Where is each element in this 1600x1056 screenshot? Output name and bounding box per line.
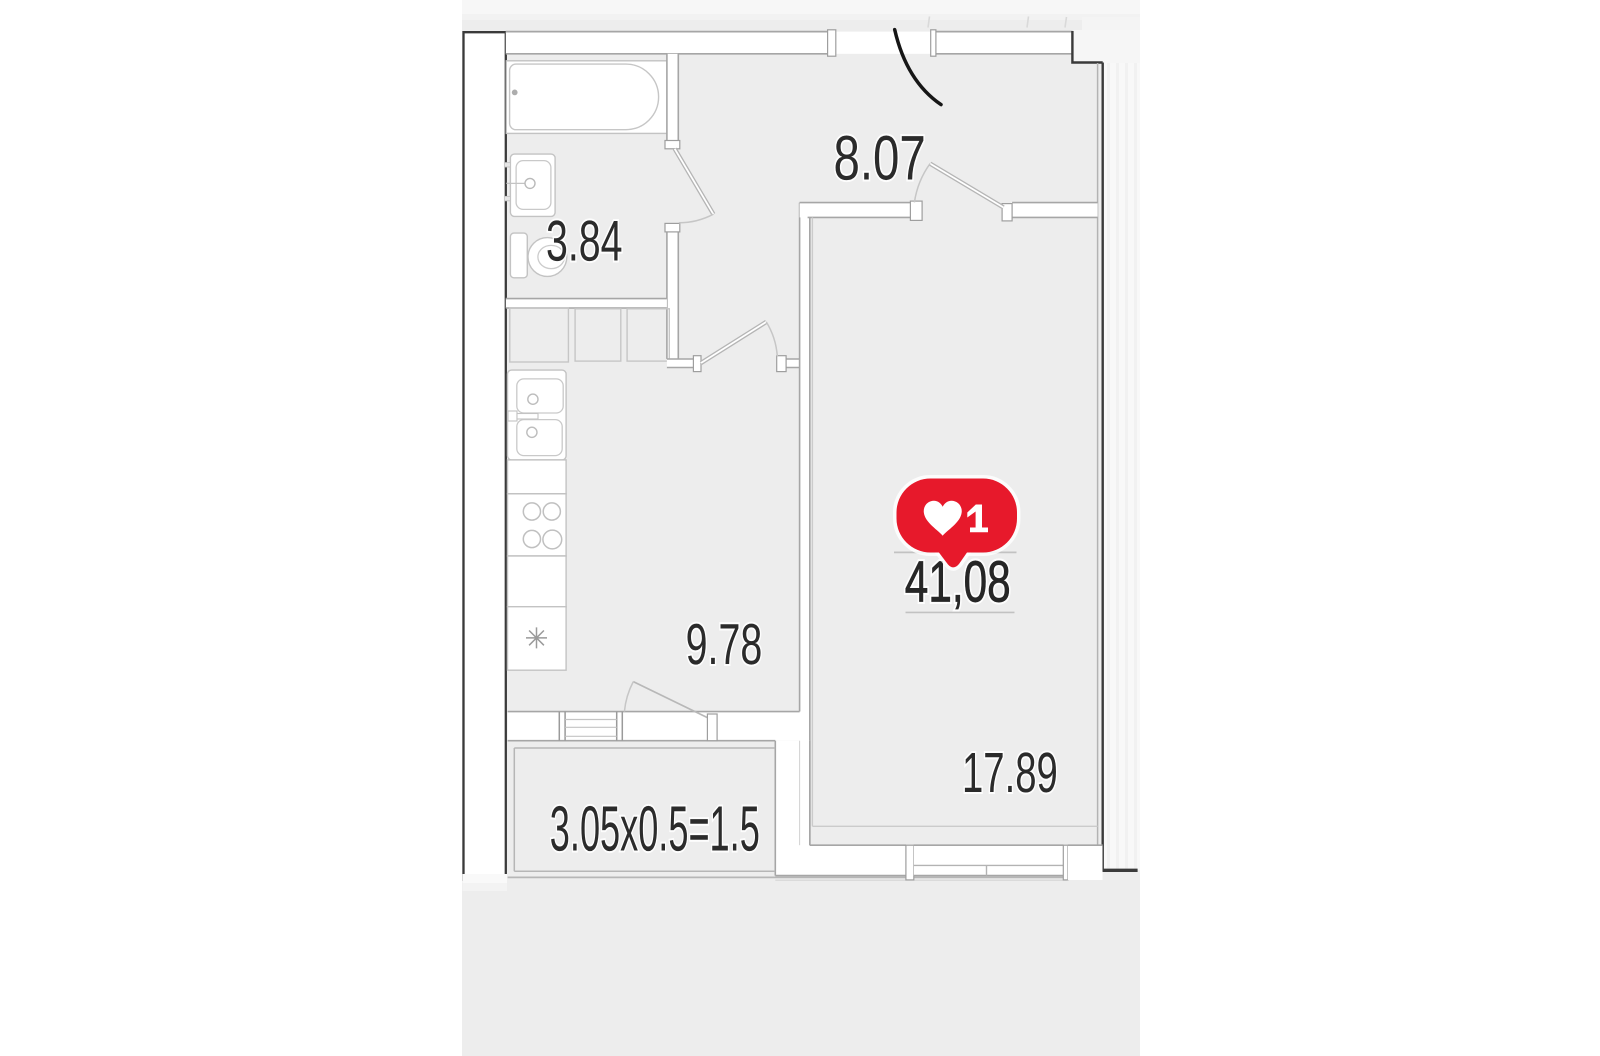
svg-text:3.84: 3.84	[546, 210, 623, 274]
svg-text:9.78: 9.78	[686, 613, 763, 677]
svg-text:3.05х0.5=1.5: 3.05х0.5=1.5	[550, 793, 760, 865]
svg-text:17.89: 17.89	[962, 742, 1058, 805]
svg-text:8.07: 8.07	[834, 124, 926, 194]
